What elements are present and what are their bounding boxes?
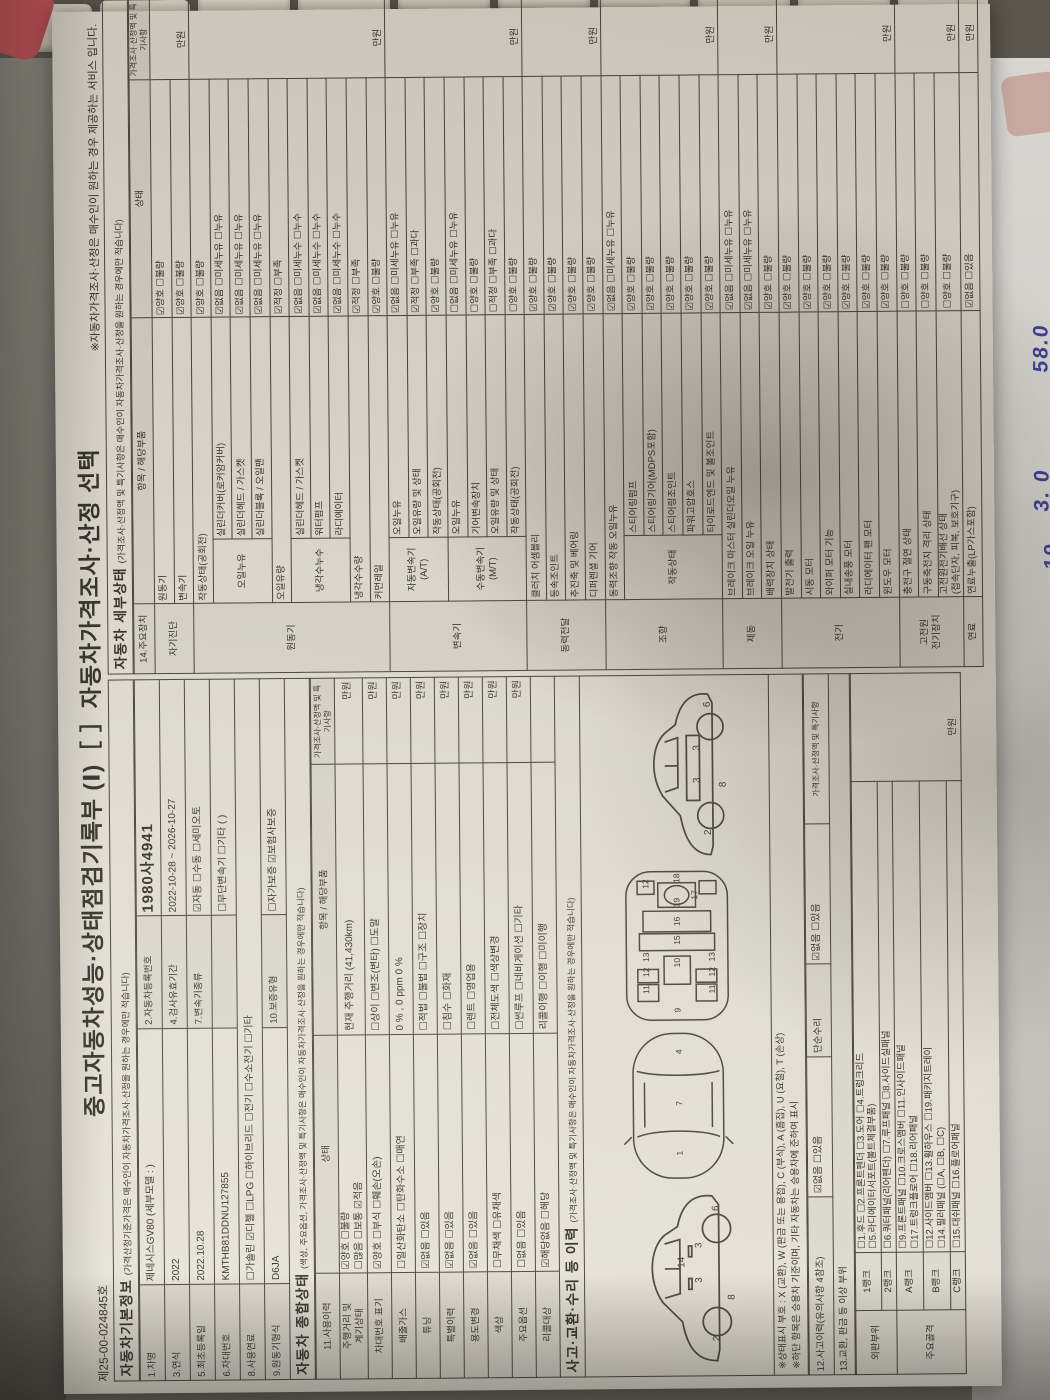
device-item: 스티어링기어(MDPS포함)	[642, 313, 664, 535]
diagram-number-label: 9	[672, 1007, 682, 1012]
device-item: 오일유량	[270, 316, 292, 602]
diagram-number-label: 3	[693, 1243, 704, 1249]
device-state: ☑양호 ☐불량	[679, 75, 701, 313]
usage-row-label: 주행거리 및 계기상태	[339, 1273, 368, 1379]
price-unit: 만원	[850, 673, 961, 782]
price-unit: 만원	[600, 0, 718, 76]
zone-label: 주요골격	[897, 1310, 966, 1375]
car-diagram-frame-view: 23386	[589, 681, 761, 867]
device-state: ☑적정 ☐부족	[268, 78, 290, 316]
accident-note: (가격조사·산정액 및 특기사항은 매수인이 자동차가격조사·산정을 원하는 경…	[566, 897, 579, 1222]
device-sub-label: 냉각수누수	[291, 538, 350, 603]
device-item: 냉각수수량	[348, 316, 370, 602]
rank-label: C랭크	[950, 1251, 965, 1309]
rank-body: 외판부위1랭크☐1.후드 ☐2.프론트펜더 ☐3.도어 ☐4.트렁크리드 ☐5.…	[850, 673, 966, 1375]
usage-row-state: ☐무채색 ☐유채색	[485, 1033, 511, 1272]
diagram-number-label: 2	[703, 830, 714, 836]
price-unit: 만원	[894, 0, 959, 73]
device-group-label: 전기	[782, 597, 900, 668]
field-label: 8.사용연료	[240, 1284, 266, 1380]
car-diagram-floor-view: 911111212131310151619171218	[590, 865, 761, 1026]
diagram-number-label: 8	[718, 782, 729, 788]
device-item: 동력조향 작동 오일누유	[603, 314, 625, 600]
overall-col-item: 항목 / 해당부품	[311, 764, 337, 1035]
device-item: 작동상태(공회전)	[426, 315, 448, 537]
device-state: ☑없음 ☐미세누유 ☐누유	[385, 77, 407, 315]
device-item: 실내송풍 모터	[838, 312, 860, 598]
device-item: 오일누유	[446, 315, 468, 537]
device-state: ☑없음 ☐미세누유 ☐누유	[718, 75, 740, 313]
document-sheet: 제25-00-024845호 중고자동차성능·상태점검기록부 (Ⅰ)［ ］자동차…	[52, 4, 1002, 1394]
field-label: 7.변속기종류	[186, 916, 212, 1028]
diagram-number-label: 1	[675, 1150, 685, 1155]
field-value: 2022	[162, 1028, 189, 1285]
field-label: 10.보증유형	[261, 915, 287, 1027]
accident-history-state: ☑없음 ☐있음	[806, 1056, 832, 1196]
device-item: 충전구 절연 상태	[897, 311, 919, 597]
field-label: 3.연식	[165, 1284, 191, 1380]
device-item: 작동상태(공회전)	[505, 314, 527, 536]
rank-label: B랭크	[923, 1252, 950, 1310]
diagram-number-label: 8	[726, 1294, 737, 1300]
diagram-number-label: 6	[710, 1206, 721, 1212]
diagram-number-label: 2	[712, 1336, 723, 1342]
device-item: 커먼레일	[368, 316, 390, 602]
device-item: 실린더헤드 / 가스켓	[289, 316, 311, 538]
diagram-number-label: 11	[707, 984, 717, 993]
left-half: 자동차기본정보(가격산정기준가격은 매수인이 자동차가격조사·산정을 원하는 경…	[108, 672, 988, 1382]
simple-repair-state: ☑없음 ☐있음	[804, 824, 830, 964]
rank-table: 외판부위1랭크☐1.후드 ☐2.프론트펜더 ☐3.도어 ☐4.트렁크리드 ☐5.…	[849, 672, 966, 1375]
accident-history-label: 12.사고이력(유의사항 4참조)	[807, 1197, 834, 1375]
rank-items: ☐1.후드 ☐2.프론트펜더 ☐3.도어 ☐4.트렁크리드 ☐5.라디에이터서포…	[851, 782, 882, 1253]
price-unit: 만원	[958, 0, 978, 73]
rank-label: 2랭크	[882, 1252, 897, 1310]
device-state: ☐양호 ☐불량	[914, 73, 936, 311]
device-state: ☑양호 ☐불량	[424, 77, 446, 315]
usage-row-label: 배출가스	[391, 1272, 416, 1378]
device-item: 타이로드엔드 및 볼조인트	[701, 313, 723, 535]
device-state: ☑없음 ☐있음	[959, 72, 981, 310]
pink-object	[1000, 70, 1050, 137]
device-state: ☑양호 ☐불량	[836, 74, 858, 312]
price-unit: 만원	[362, 678, 387, 764]
handwriting: 19.	[1040, 533, 1050, 571]
basic-info-title: 자동차기본정보	[118, 1279, 135, 1376]
device-item: 연료누출(LP가스포함)	[961, 310, 983, 596]
device-item: 변속기	[172, 317, 194, 603]
device-state: ☑양호 ☐불량	[561, 76, 583, 314]
device-group-label: 고전원 전기장치	[899, 597, 964, 668]
field-value: ☐자가보증 ☑보험사보증	[259, 679, 286, 916]
device-item: 디퍼렌셜 기어	[583, 314, 605, 600]
diagram-number-label: 18	[671, 873, 681, 883]
device-state: ☑적정 ☐부족 ☐과다	[405, 77, 427, 315]
detail-table: 14.주요장치 항목 / 해당부품 상태 가격조사·산정액 및 특기사항 자기진…	[128, 0, 984, 674]
car-diagram-side-view: 2833146	[593, 1185, 765, 1371]
device-state: ☑없음 ☐미세누수 ☐누수	[287, 78, 309, 316]
overall-col-label: 11.사용이력	[315, 1273, 340, 1379]
device-state: ☑없음 ☐미세누유 ☐누유	[228, 79, 250, 317]
device-item: 라디에이터	[328, 316, 350, 538]
zone-label: 외판부위	[855, 1310, 897, 1374]
device-state: ☑양호 ☐불량	[522, 76, 544, 314]
device-group-label: 동력전달	[527, 600, 606, 671]
diagram-number-label: 11	[641, 985, 651, 994]
usage-row-state: ☐일산화탄소 ☐탄화수소 ☐매연	[389, 1034, 415, 1273]
device-item: 윈도우 모터	[877, 311, 899, 597]
device-state: ☐양호 ☐불량	[464, 77, 486, 315]
device-item: 스티어링펌프	[622, 313, 644, 535]
device-state: ☐양호 ☐불량	[503, 76, 525, 314]
price-unit: 만원	[384, 0, 522, 78]
usage-row-state: ☑양호 ☐불량 ☐많음 ☐보통 ☑적음	[337, 1034, 367, 1273]
device-group-label: 제동	[723, 598, 782, 669]
device-state: ☑양호 ☐불량	[189, 79, 211, 317]
detail-col-device: 14.주요장치	[134, 604, 156, 674]
detail-col-state: 상태	[129, 80, 152, 318]
device-state: ☑없음 ☐미세누유 ☐누유	[601, 76, 623, 314]
device-item: 라디에이터 팬 모터	[857, 311, 879, 597]
device-item: 원동기	[152, 318, 174, 604]
device-state: ☑양호 ☐불량	[581, 76, 603, 314]
field-value: 2022-10-28 ~ 2026-10-27	[159, 679, 186, 916]
field-label: 4.검사유효기간	[161, 916, 187, 1028]
inspection-document: 제25-00-024845호 중고자동차성능·상태점검기록부 (Ⅰ)［ ］자동차…	[52, 4, 1002, 1394]
price-unit: 만원	[410, 677, 435, 763]
usage-row-item: ☐썬루프 ☐네비게이션 ☐기타	[507, 763, 533, 1034]
usage-row-item: 리콜이행 ☐이행 ☐미이행	[531, 762, 557, 1033]
device-item: 와이퍼 모터 기능	[818, 312, 840, 598]
rank-row: 외판부위1랭크☐1.후드 ☐2.프론트펜더 ☐3.도어 ☐4.트렁크리드 ☐5.…	[850, 673, 883, 1374]
usage-row-state: ☑없음 ☐있음	[413, 1034, 439, 1273]
device-state: ☑양호 ☐불량	[542, 76, 564, 314]
usage-row-label: 주요옵션	[511, 1271, 536, 1377]
device-item: 워터펌프	[309, 316, 331, 538]
diagram-number-label: 10	[672, 958, 682, 968]
device-item: 오일누유	[387, 315, 409, 537]
field-label	[211, 915, 237, 1027]
device-item: 기어변속장치	[466, 315, 488, 537]
diagram-number-label: 3	[694, 1277, 705, 1283]
detail-body: 14.주요장치 항목 / 해당부품 상태 가격조사·산정액 및 특기사항 자기진…	[128, 0, 983, 674]
accident-title: 사고·교환·수리 등 이력	[564, 1226, 581, 1372]
field-label: 5.최초등록일	[190, 1284, 216, 1380]
device-state: ☑없음 ☐미세누유 ☐누유	[248, 79, 270, 317]
usage-row-state: ☑해당없음 ☐해당	[533, 1033, 559, 1272]
field-value: KMTHB81DDNU127855	[212, 1027, 239, 1284]
device-state: ☑양호 ☐불량	[640, 75, 662, 313]
price-unit: 만원	[776, 0, 894, 74]
rank-items: ☐15.대쉬패널 ☐16.플로어패널	[946, 781, 965, 1252]
device-item: 오일유량 및 상태	[407, 315, 429, 537]
device-state: ☑양호 ☐불량	[797, 74, 819, 312]
detail-note: (가격조사·산정액 및 특기사항은 매수인이 자동차가격조사·산정을 원하는 경…	[114, 219, 127, 563]
field-value: 2022.10.28	[187, 1028, 214, 1285]
device-state: ☑없음 ☐미세누유 ☐누유	[209, 79, 231, 317]
price-unit: 만원	[334, 678, 363, 764]
field-label: 6.차대번호	[215, 1284, 241, 1380]
device-item: 실린더헤드 / 가스켓	[230, 317, 252, 539]
diagram-number-label: 12	[641, 967, 651, 977]
device-state: ☑양호 ☐불량	[757, 74, 779, 312]
price-unit: 만원	[434, 677, 459, 763]
overall-col-state: 상태	[313, 1035, 339, 1274]
device-state: ☑양호 ☐불량	[620, 75, 642, 313]
rank-label: A랭크	[896, 1252, 923, 1310]
usage-row-label: 리콜대상	[535, 1271, 560, 1377]
field-value: 1980사4941	[134, 680, 161, 917]
usage-row-item: ☐렌트 ☐영업용	[459, 763, 485, 1034]
simple-repair-label: 단순수리	[805, 964, 831, 1056]
price-unit: 만원	[482, 677, 507, 763]
device-sub-label: 수동변속기 (M/T)	[448, 536, 527, 601]
usage-row-item: 현재 주행거리 (41,430km)	[335, 764, 365, 1035]
usage-row-label: 특별이력	[439, 1272, 464, 1378]
basic-info-table: 1.차명제네시스GV80 (세부모델 : )2.자동차등록번호1980사4941…	[134, 678, 291, 1381]
device-state: ☑적정 ☐부족	[346, 78, 368, 316]
overall-table: 11.사용이력 상태 항목 / 해당부품 가격조사·산정액 및 특기사항 주행거…	[310, 676, 561, 1380]
service-note: ※자동차가격조사·산정은 매수인이 원하는 경우 제공하는 서비스 입니다.	[84, 24, 103, 354]
usage-row-label: 색상	[487, 1271, 512, 1377]
rank-items: ☐9.프론트패널 ☐10.크로스멤버 ☐11.인사이드패널 ☐17.트렁크플로어…	[892, 781, 923, 1252]
handwriting: 3. 0	[1030, 467, 1050, 513]
device-state: ☐적정 ☐부족 ☐과다	[483, 77, 505, 315]
overall-title: 자동차 종합상태	[294, 1273, 311, 1375]
device-state: ☑없음 ☐미세누수 ☐누수	[307, 78, 329, 316]
document-serial-number: 제25-00-024845호	[93, 1212, 111, 1382]
usage-row-state: ☑없음 ☐있음	[437, 1034, 463, 1273]
device-state: ☑양호 ☐불량	[855, 73, 877, 311]
usage-row-state: ☑없음 ☐있음	[461, 1033, 487, 1272]
usage-row-state: ☐없음 ☐있음	[509, 1033, 535, 1272]
basic-info-note: (가격산정기준가격은 매수인이 자동차가격조사·산정을 원하는 경우에만 적습니…	[120, 972, 133, 1275]
diagram-number-label: 13	[641, 952, 651, 962]
usage-row-item: ☐침수 ☐화재	[435, 763, 461, 1034]
device-item: 실린더커버(로커암커버)	[211, 317, 233, 539]
diagram-number-label: 4	[674, 1049, 684, 1054]
field-label: 1.차명	[140, 1284, 166, 1380]
device-state: ☑양호 ☐불량	[659, 75, 681, 313]
device-state: ☐없음 ☐미세누유 ☐누유	[444, 77, 466, 315]
diagram-number-label: 12	[640, 879, 650, 889]
device-state: ☑없음 ☐미세누수 ☐누수	[326, 78, 348, 316]
device-item: 브레이크 마스터 실린더오일 누유	[720, 313, 742, 599]
field-value: D6JA	[262, 1027, 289, 1284]
diagram-number-label: 3	[691, 745, 702, 751]
device-item: 파워고압호스	[681, 313, 703, 535]
price-unit: 만원	[506, 676, 531, 762]
device-state: ☑양호 ☐불량	[150, 80, 172, 318]
diagram-number-label: 19	[671, 898, 681, 908]
device-item: 추진축 및 베어링	[564, 314, 586, 600]
device-state: ☑양호 ☐불량	[875, 73, 897, 311]
device-group-label: 원동기	[194, 602, 391, 674]
device-item: 클러치 어셈블리	[524, 314, 546, 600]
field-label: 2.자동차등록번호	[136, 916, 162, 1028]
usage-row-label: 용도변경	[463, 1272, 488, 1378]
diagram-number-label: 6	[702, 702, 713, 708]
usage-row-item: ☐전체도색 ☐색상변경	[483, 763, 509, 1034]
detail-col-price: 가격조사·산정액 및 특기사항	[128, 0, 150, 80]
device-item: 시동 모터	[799, 312, 821, 598]
device-item: 오일유량 및 상태	[485, 315, 507, 537]
usage-row-label: 튜닝	[415, 1272, 440, 1378]
price-unit: 만원	[149, 0, 189, 80]
device-sub-label: 작동상태	[624, 535, 723, 600]
price-unit	[530, 676, 555, 762]
detail-col-item: 항목 / 해당부품	[131, 318, 154, 604]
right-half: 자동차 세부상태(가격조사·산정액 및 특기사항은 매수인이 자동차가격조사·산…	[102, 0, 982, 675]
diagram-number-label: 15	[672, 935, 682, 945]
overall-col-price: 가격조사·산정액 및 특기사항	[310, 678, 335, 764]
diagram-number-label: 3	[692, 778, 703, 784]
device-item: 작동상태(공회전)	[191, 317, 213, 603]
overall-note: (색상, 주요옵션, 가격조사·산정액 및 특기사항은 매수인이 자동차가격조사…	[296, 887, 309, 1268]
overall-body: 11.사용이력 상태 항목 / 해당부품 가격조사·산정액 및 특기사항 주행거…	[310, 676, 560, 1379]
car-diagrams: 2833146 174	[580, 674, 775, 1378]
rank-label: 1랭크	[855, 1252, 882, 1310]
device-sub-label: 자동변속기 (A/T)	[389, 537, 448, 602]
device-item: 스티어링조인트	[662, 313, 684, 535]
diagram-number-label: 12	[707, 967, 717, 977]
device-state: ☑양호 ☐불량	[777, 74, 799, 312]
handwriting: 58.0	[1030, 322, 1050, 373]
rank-items: ☐12.사이드멤버 ☐13.휠하우스 ☐19.패키지트레이 ☐14.필러패널 (…	[919, 781, 950, 1252]
diagram-number-label: 14	[676, 1256, 687, 1268]
price-unit: 만원	[718, 0, 777, 75]
field-value: ☑자동 ☐수동 ☐세미오토	[184, 679, 211, 916]
diagram-number-label: 17	[689, 890, 699, 900]
device-state: ☐양호 ☐불량	[895, 73, 917, 311]
diagram-number-label: 13	[707, 952, 717, 962]
device-state: ☑양호 ☐불량	[699, 75, 721, 313]
usage-row-item: ☐상이 ☐변조(변타) ☐도말	[363, 764, 389, 1035]
usage-row-state: ☑양호 ☐부식 ☐훼손(오손)	[365, 1034, 391, 1273]
device-item: 고전원전기배선 상태 (접속단자, 피복, 보호기구)	[936, 311, 963, 597]
usage-row-item: ☐적법 ☐불법 ☐구조 ☐장치	[411, 763, 437, 1034]
handwriting: 48	[1046, 625, 1050, 655]
device-state: ☑양호 ☐불량	[816, 74, 838, 312]
device-group-label: 조향	[605, 599, 723, 670]
device-item: 등속조인트	[544, 314, 566, 600]
device-group-label: 변속기	[390, 600, 528, 671]
field-label: 9.원동기형식	[265, 1283, 291, 1379]
device-item: 배력장치 상태	[759, 312, 781, 598]
document-title: 중고자동차성능·상태점검기록부 (Ⅰ)［ ］자동차가격조사·산정 선택	[69, 354, 110, 1212]
device-state: ☑양호 ☐불량	[366, 78, 388, 316]
field-value: 제네시스GV80 (세부모델 : )	[137, 1028, 164, 1285]
field-value: ☐무단변속기 ☐기타 ( )	[209, 679, 236, 916]
price-unit: 만원	[189, 0, 386, 79]
detail-title: 자동차 세부상태	[112, 567, 129, 669]
car-diagram-top-view: 174	[592, 1025, 763, 1186]
usage-row-item: 0 % , 0 ppm 0 %	[387, 764, 413, 1035]
accident-price-head: 가격조사·산정액 및 특기사항	[803, 674, 829, 824]
device-sub-label: 오일누유	[213, 539, 272, 604]
price-unit: 만원	[522, 0, 601, 76]
device-item: 발전기 출력	[779, 312, 801, 598]
basic-info-body: 1.차명제네시스GV80 (세부모델 : )2.자동차등록번호1980사4941…	[134, 679, 290, 1381]
device-state: ☑없음 ☐미세누유 ☐누유	[738, 74, 760, 312]
device-item: 실린더블록 / 오일팬	[250, 317, 272, 539]
usage-row-label: 차대번호 표기	[367, 1272, 392, 1378]
device-item: 구동축전지 격리 상태	[916, 311, 938, 597]
accident-history-table: 12.사고이력(유의사항 4참조) ☑없음 ☐있음 단순수리 ☑없음 ☐있음 가…	[802, 673, 855, 1375]
diagram-number-label: 7	[674, 1100, 684, 1105]
price-unit: 만원	[386, 677, 411, 763]
price-unit: 만원	[458, 677, 483, 763]
device-group-label: 자기진단	[155, 603, 195, 673]
device-state: ☑양호 ☐불량	[170, 79, 192, 317]
document-body: 자동차기본정보(가격산정기준가격은 매수인이 자동차가격조사·산정을 원하는 경…	[102, 16, 988, 1382]
device-state: ☐양호 ☐불량	[934, 73, 961, 311]
device-group-label: 연료	[963, 596, 983, 666]
device-item: 브레이크 오일 누유	[740, 312, 762, 598]
diagram-number-label: 16	[672, 916, 682, 926]
